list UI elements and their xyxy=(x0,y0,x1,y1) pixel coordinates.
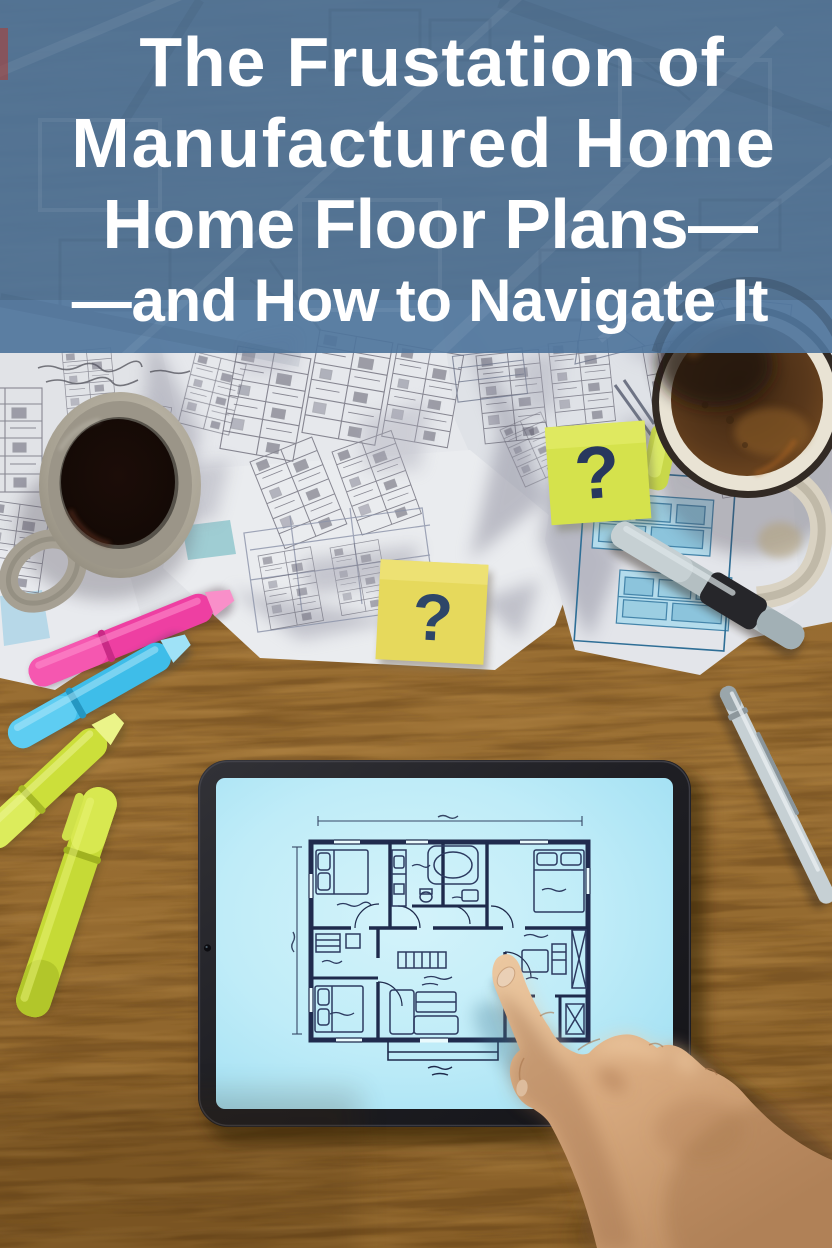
svg-text:?: ? xyxy=(411,579,455,655)
svg-text:The Frustation of: The Frustation of xyxy=(139,23,724,101)
svg-text:Manufactured Home: Manufactured Home xyxy=(71,104,776,182)
svg-text:?: ? xyxy=(572,429,623,515)
svg-text:Home Floor Plans—: Home Floor Plans— xyxy=(103,185,759,263)
svg-text:—and How to Navigate It: —and How to Navigate It xyxy=(72,267,769,334)
